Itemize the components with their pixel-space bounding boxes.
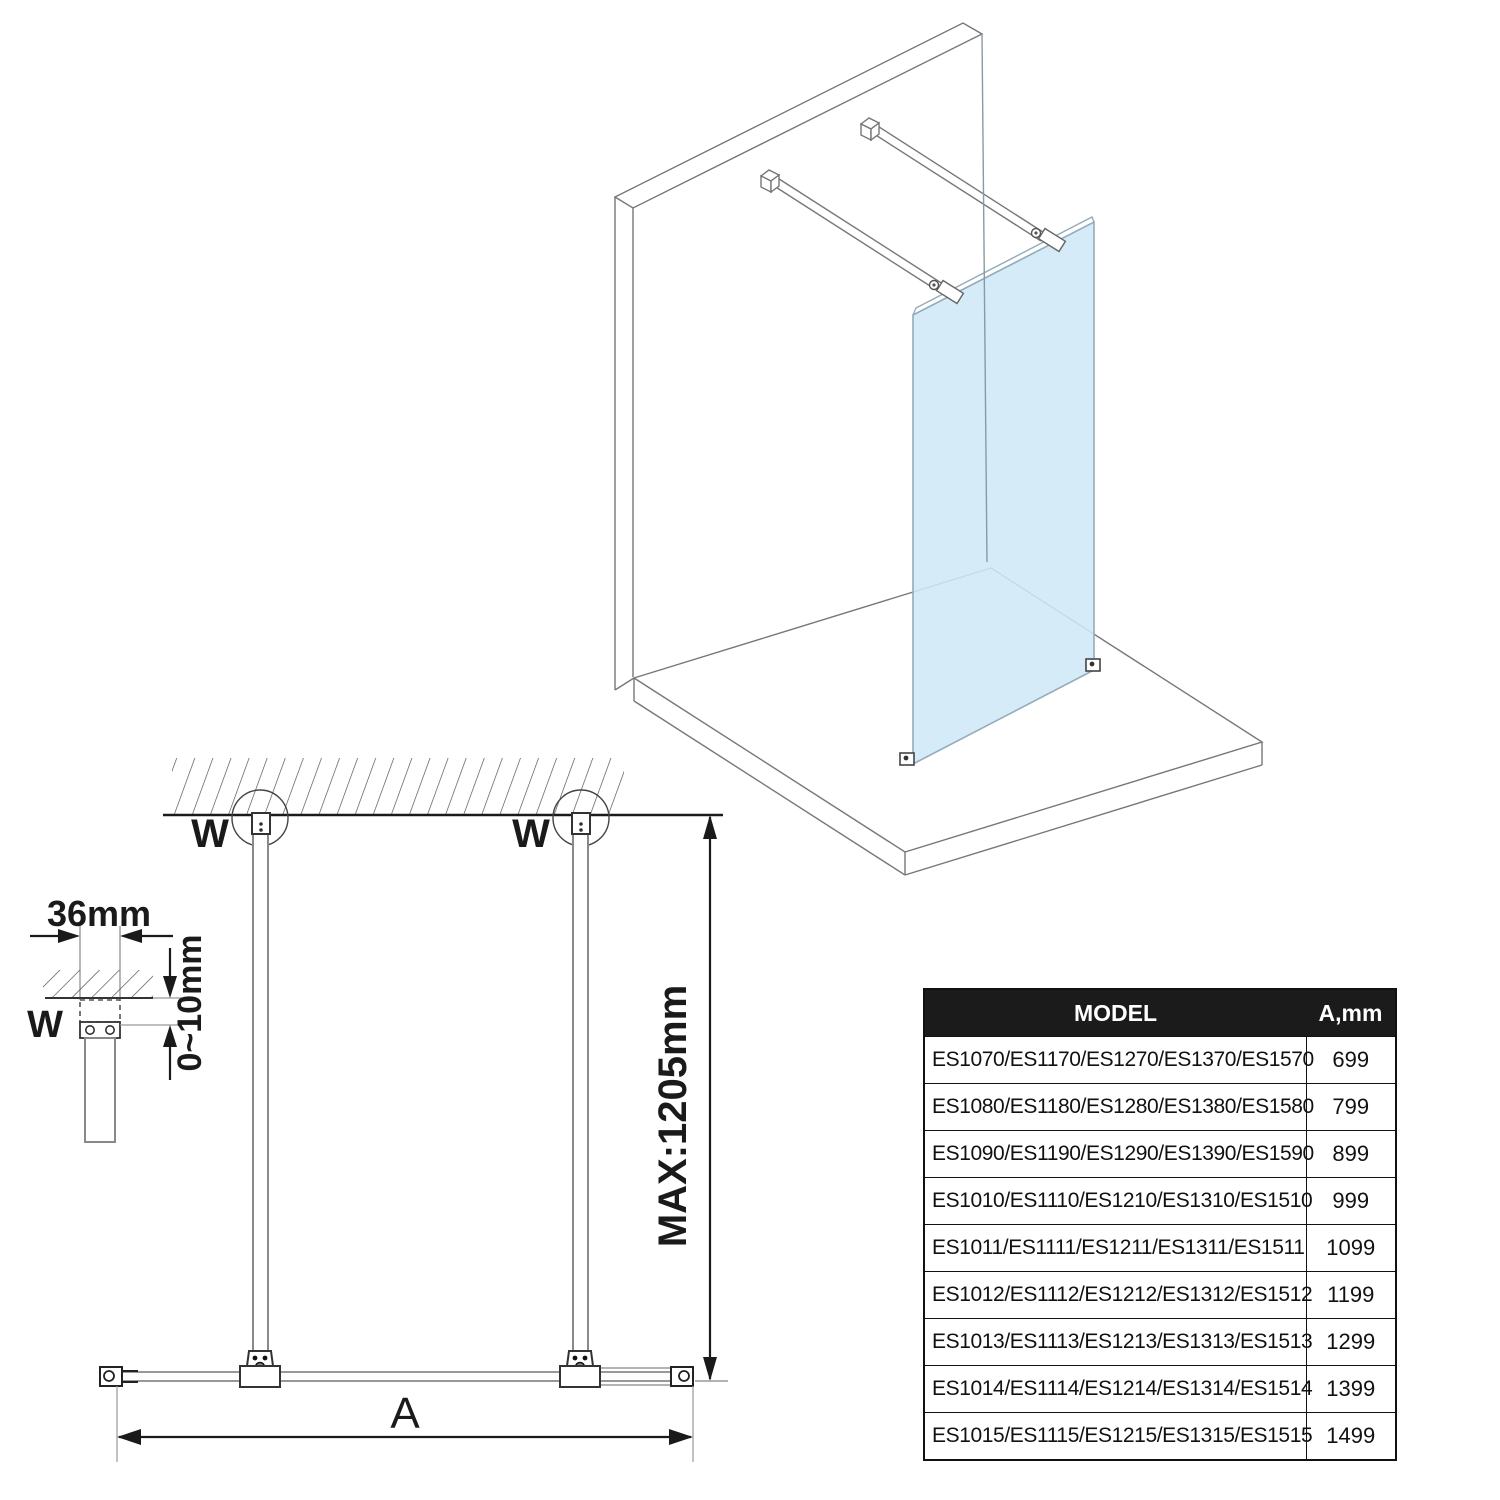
table-header-model: MODEL [924,989,1306,1037]
plan-support-bar-right [572,813,590,1352]
table-row: ES1070/ES1170/ES1270/ES1370/ES1570 699 [924,1037,1396,1084]
amm-cell: 999 [1306,1178,1396,1225]
model-cell: ES1014/ES1114/ES1214/ES1314/ES1514 [924,1366,1306,1413]
table-row: ES1011/ES1111/ES1211/ES1311/ES1511 1099 [924,1225,1396,1272]
plan-hinge-right [560,1351,600,1387]
table-row: ES1010/ES1110/ES1210/ES1310/ES1510 999 [924,1178,1396,1225]
model-cell: ES1080/ES1180/ES1280/ES1380/ES1580 [924,1084,1306,1131]
table-row: ES1015/ES1115/ES1215/ES1315/ES1515 1499 [924,1413,1396,1461]
amm-cell: 1499 [1306,1413,1396,1461]
dimension-max-length [695,815,728,1381]
label-w-plan-left: W [191,812,229,856]
detail-wall-bracket [80,1000,120,1038]
table-row: ES1012/ES1112/ES1212/ES1312/ES1512 1199 [924,1272,1396,1319]
technical-drawing-page: W W W 36mm 0~10mm MAX:1205mm A MODEL A,m… [0,0,1500,1500]
model-cell: ES1010/ES1110/ES1210/ES1310/ES1510 [924,1178,1306,1225]
plan-view [100,758,728,1462]
plan-glass-panel [118,1368,690,1385]
model-spec-table: MODEL A,mm ES1070/ES1170/ES1270/ES1370/E… [923,988,1397,1461]
iso-support-bar-front [761,170,946,293]
model-cell: ES1015/ES1115/ES1215/ES1315/ES1515 [924,1413,1306,1461]
label-adjust-range: 0~10mm [171,934,209,1071]
detail-wall-hatch [43,970,153,997]
iso-glass-foot-right [1086,659,1100,671]
table-row: ES1090/ES1190/ES1290/ES1390/ES1590 899 [924,1131,1396,1178]
model-cell: ES1070/ES1170/ES1270/ES1370/ES1570 [924,1037,1306,1084]
label-w-plan-right: W [512,812,550,856]
table-row: ES1080/ES1180/ES1280/ES1380/ES1580 799 [924,1084,1396,1131]
amm-cell: 1099 [1306,1225,1396,1272]
label-max-1205: MAX:1205mm [651,985,695,1247]
detail-support-bar [85,1038,115,1142]
table-header-row: MODEL A,mm [924,989,1396,1037]
iso-glass-foot-left [900,753,914,765]
amm-cell: 799 [1306,1084,1396,1131]
amm-cell: 1299 [1306,1319,1396,1366]
table-header-amm: A,mm [1306,989,1396,1037]
amm-cell: 1399 [1306,1366,1396,1413]
label-36mm: 36mm [47,893,151,934]
label-w-detail: W [27,1004,63,1046]
plan-end-cap-right [671,1367,693,1386]
isometric-view [615,23,1262,875]
iso-glass-panel [913,217,1094,764]
model-cell: ES1012/ES1112/ES1212/ES1312/ES1512 [924,1272,1306,1319]
model-cell: ES1090/ES1190/ES1290/ES1390/ES1590 [924,1131,1306,1178]
amm-cell: 699 [1306,1037,1396,1084]
amm-cell: 899 [1306,1131,1396,1178]
plan-support-bar-left [252,813,270,1352]
table-row: ES1014/ES1114/ES1214/ES1314/ES1514 1399 [924,1366,1396,1413]
model-cell: ES1013/ES1113/ES1213/ES1313/ES1513 [924,1319,1306,1366]
iso-support-bar-back [861,118,1046,241]
table-row: ES1013/ES1113/ES1213/ES1313/ES1513 1299 [924,1319,1396,1366]
amm-cell: 1199 [1306,1272,1396,1319]
label-dim-a: A [390,1389,420,1438]
model-cell: ES1011/ES1111/ES1211/ES1311/ES1511 [924,1225,1306,1272]
plan-hinge-left [240,1351,280,1387]
